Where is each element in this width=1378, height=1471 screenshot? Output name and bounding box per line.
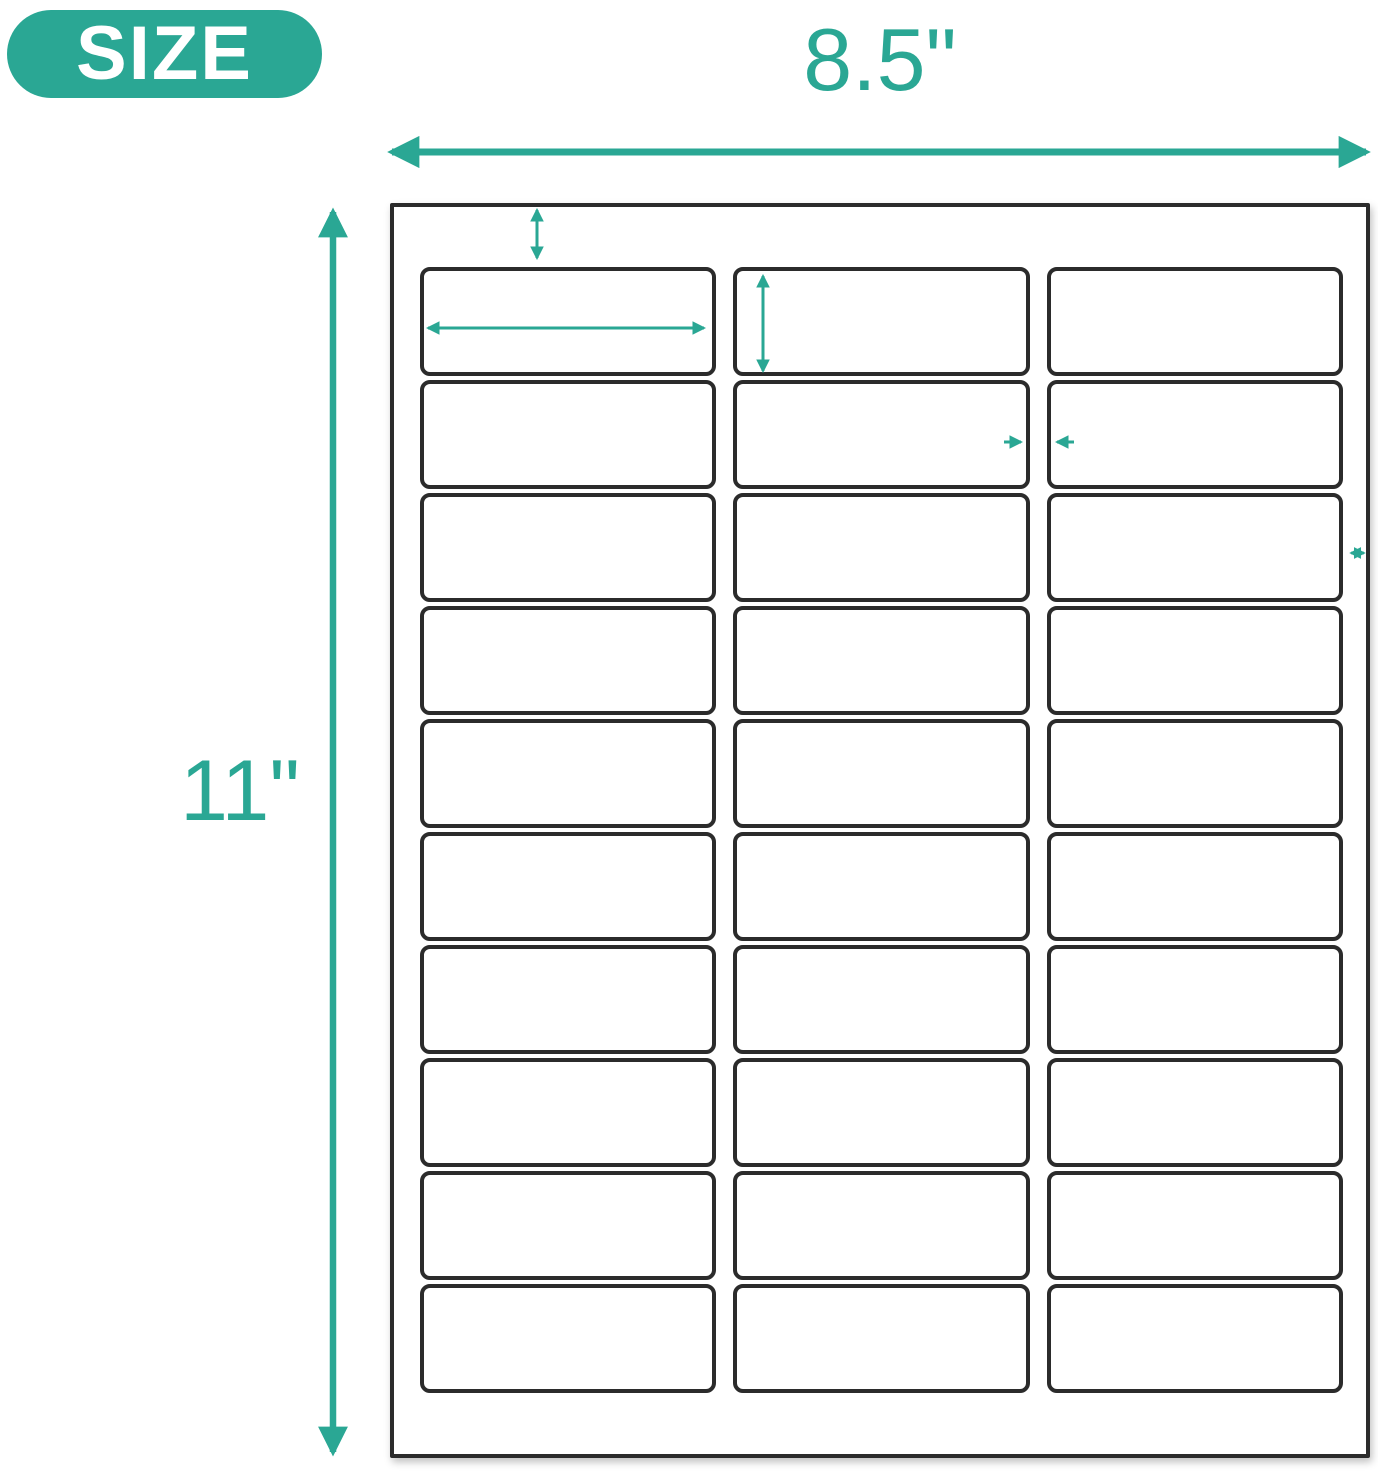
label-cell: [420, 606, 716, 715]
label-cell: [733, 267, 1029, 376]
label-cell: [1047, 1058, 1343, 1167]
label-cell: [733, 719, 1029, 828]
label-cell: [420, 493, 716, 602]
label-cell: [733, 1171, 1029, 1280]
label-sheet-size-diagram: SIZE 8.5" 11" 0.5" 2.625" 1.024" 0.126" …: [0, 0, 1378, 1471]
label-cell: [733, 606, 1029, 715]
label-grid: [420, 267, 1343, 1393]
label-cell: [420, 1058, 716, 1167]
label-cell: [733, 380, 1029, 489]
label-cell: [1047, 719, 1343, 828]
label-cell: [1047, 1171, 1343, 1280]
label-cell: [420, 945, 716, 1054]
label-cell: [420, 832, 716, 941]
sheet-width-dimension: 8.5": [720, 16, 1040, 104]
label-cell: [1047, 380, 1343, 489]
label-cell: [733, 1058, 1029, 1167]
label-cell: [1047, 1284, 1343, 1393]
label-cell: [733, 1284, 1029, 1393]
label-cell: [1047, 945, 1343, 1054]
label-cell: [420, 1171, 716, 1280]
label-cell: [420, 1284, 716, 1393]
size-badge: SIZE: [7, 10, 322, 98]
label-cell: [733, 945, 1029, 1054]
label-cell: [733, 493, 1029, 602]
label-cell: [1047, 832, 1343, 941]
label-cell: [1047, 267, 1343, 376]
label-cell: [420, 719, 716, 828]
label-cell: [1047, 493, 1343, 602]
label-cell: [420, 267, 716, 376]
label-cell: [733, 832, 1029, 941]
sheet-height-dimension: 11": [130, 748, 350, 834]
label-sheet: [390, 203, 1370, 1458]
label-cell: [1047, 606, 1343, 715]
label-cell: [420, 380, 716, 489]
